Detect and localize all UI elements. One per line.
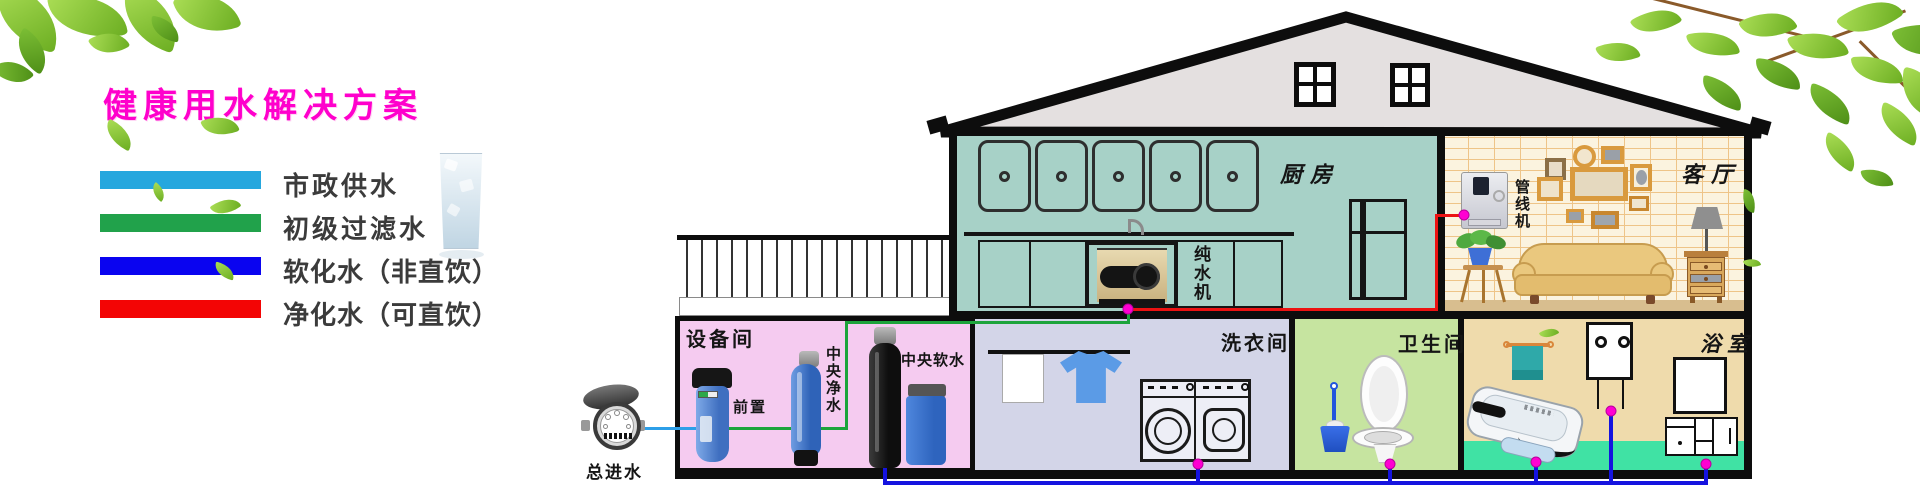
pipe-filtered bbox=[729, 427, 848, 430]
fridge bbox=[1349, 199, 1407, 300]
legend-swatch-softened bbox=[100, 257, 261, 275]
photo-frame bbox=[1591, 211, 1619, 229]
leaf-icon bbox=[172, 0, 241, 44]
pure-water-machine-label: 纯水机 bbox=[1188, 245, 1213, 309]
photo-frame bbox=[1566, 209, 1584, 223]
junction-dot bbox=[1701, 459, 1712, 470]
wall-kitchen-living bbox=[1437, 133, 1445, 319]
junction-dot bbox=[1459, 210, 1470, 221]
prefilter-label: 前置 bbox=[733, 396, 767, 417]
leaf-icon bbox=[1803, 83, 1858, 126]
photo-frame bbox=[1573, 145, 1596, 168]
legend-label-municipal: 市政供水 bbox=[283, 166, 399, 203]
terrace-beam bbox=[679, 297, 969, 316]
legend-label-purified: 净化水（可直饮） bbox=[283, 295, 499, 332]
pipe-filtered bbox=[845, 321, 1130, 324]
pipe-purified bbox=[1435, 214, 1438, 311]
ceiling-band bbox=[949, 128, 1752, 136]
banner-canvas: 健康用水解决方案 市政供水 初级过滤水 软化水（非直饮） 净化水（可直饮） bbox=[0, 0, 1920, 500]
junction-dot bbox=[1123, 304, 1134, 315]
photo-frame bbox=[1629, 196, 1649, 211]
laundry-label: 洗衣间 bbox=[1221, 327, 1290, 356]
floor-band-upper bbox=[949, 311, 1752, 319]
equipment-label: 设备间 bbox=[686, 323, 755, 352]
pipe-filtered bbox=[845, 321, 848, 430]
water-meter-label: 总进水 bbox=[586, 458, 643, 483]
page-title: 健康用水解决方案 bbox=[103, 78, 423, 127]
purifier-label: 中央净水 bbox=[822, 346, 843, 412]
leaf-icon bbox=[1851, 53, 1903, 87]
living-label: 客厅 bbox=[1681, 157, 1741, 189]
junction-dot bbox=[1606, 406, 1617, 417]
wall-left bbox=[949, 128, 957, 319]
softener-label: 中央软水 bbox=[901, 349, 965, 370]
pipe-softened-main bbox=[883, 481, 1708, 485]
toilet-label: 卫生间 bbox=[1398, 328, 1467, 357]
legend-swatch-municipal bbox=[100, 171, 261, 189]
attic-window bbox=[1390, 63, 1430, 107]
leaf-icon bbox=[1872, 102, 1920, 147]
kitchen-label: 厨房 bbox=[1280, 157, 1340, 189]
pipeline-machine-label: 管线机 bbox=[1511, 179, 1532, 231]
leaf-icon bbox=[1787, 23, 1849, 68]
hanging-sheet bbox=[1002, 354, 1044, 403]
bath-label: 浴室 bbox=[1700, 328, 1754, 358]
legend-swatch-purified bbox=[100, 300, 261, 318]
photo-frame bbox=[1570, 167, 1628, 201]
pipe-softened bbox=[1609, 411, 1613, 483]
bathtub bbox=[1466, 386, 1588, 468]
wall-right-upper bbox=[1744, 133, 1752, 319]
photo-frame bbox=[1537, 177, 1563, 201]
bath-mirror bbox=[1673, 357, 1727, 414]
leaf-icon bbox=[1817, 132, 1864, 173]
junction-dot bbox=[1385, 459, 1396, 470]
junction-dot bbox=[1531, 457, 1542, 468]
legend-label-filtered: 初级过滤水 bbox=[283, 209, 428, 246]
leaf-icon bbox=[1836, 0, 1905, 48]
legend-swatch-filtered bbox=[100, 214, 261, 232]
pipe-municipal bbox=[640, 427, 698, 430]
photo-frame bbox=[1601, 146, 1624, 164]
junction-dot bbox=[1193, 459, 1204, 470]
attic-window bbox=[1294, 62, 1336, 107]
leaf-icon bbox=[1860, 166, 1893, 191]
pipe-purified bbox=[1128, 308, 1438, 311]
faucet-icon bbox=[1128, 219, 1131, 233]
